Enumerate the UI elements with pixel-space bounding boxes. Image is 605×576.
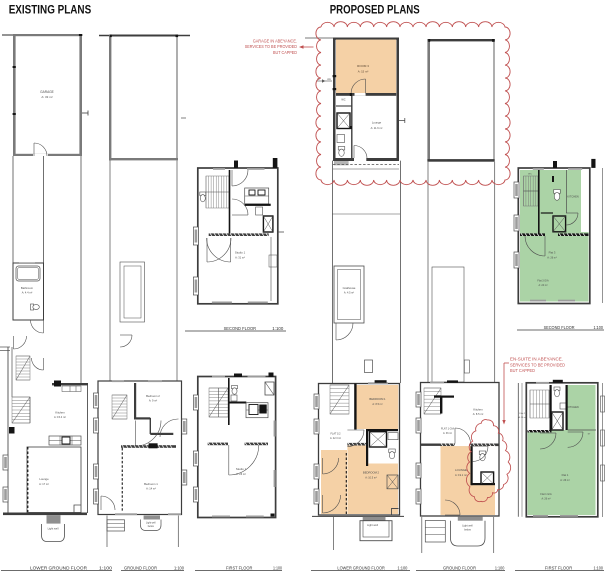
svg-text:A: 4.5 m²: A: 4.5 m² (344, 292, 354, 295)
svg-text:A: 34 m²: A: 34 m² (519, 416, 527, 419)
svg-text:BUT CAPPED: BUT CAPPED (510, 368, 535, 373)
svg-text:LOUNGE: LOUNGE (455, 468, 467, 472)
svg-text:A: 42.3 m²: A: 42.3 m² (330, 437, 341, 440)
svg-text:A: 15 m²: A: 15 m² (358, 70, 369, 74)
svg-text:GARAGE: GARAGE (40, 90, 54, 94)
svg-text:BUT CAPPED: BUT CAPPED (273, 50, 297, 55)
svg-text:Light well: Light well (48, 527, 59, 531)
svg-text:Flat 3: Flat 3 (549, 251, 556, 255)
svg-text:A: 33 m²: A: 33 m² (41, 95, 52, 99)
svg-text:A: 14 m²: A: 14 m² (146, 487, 156, 491)
svg-text:Bathroom: Bathroom (21, 286, 34, 290)
svg-text:KITCHEN: KITCHEN (567, 405, 579, 409)
svg-text:FIRST FLOOR: FIRST FLOOR (545, 566, 573, 572)
svg-text:A: 24 m²: A: 24 m² (538, 284, 547, 287)
svg-text:Kitchen: Kitchen (55, 411, 65, 415)
svg-text:FLAT 1/2: FLAT 1/2 (330, 433, 341, 436)
svg-text:GROUND FLOOR: GROUND FLOOR (124, 566, 157, 572)
svg-text:WC: WC (528, 174, 532, 176)
svg-text:BEDROOM 2: BEDROOM 2 (363, 471, 380, 475)
svg-text:1:100: 1:100 (594, 566, 604, 572)
svg-text:Light well: Light well (367, 523, 378, 527)
svg-text:A: 8.5 m²: A: 8.5 m² (473, 412, 484, 416)
svg-text:Studio 1: Studio 1 (236, 467, 247, 471)
svg-text:WC: WC (341, 99, 345, 102)
svg-text:ROOM 3: ROOM 3 (357, 64, 369, 68)
svg-text:LOWER GROUND FLOOR: LOWER GROUND FLOOR (337, 566, 385, 572)
svg-text:A: 11.6 m²: A: 11.6 m² (371, 126, 383, 130)
svg-text:Kitchen: Kitchen (473, 408, 483, 412)
svg-text:1:100: 1:100 (272, 326, 283, 332)
svg-text:A: 8.5 m²: A: 8.5 m² (372, 403, 382, 406)
svg-text:A: 17 m²: A: 17 m² (39, 482, 49, 486)
svg-text:Bedroom 2: Bedroom 2 (146, 394, 160, 398)
svg-text:SECOND FLOOR: SECOND FLOOR (224, 326, 257, 332)
svg-text:Lounge: Lounge (39, 477, 49, 481)
svg-text:1:100: 1:100 (174, 566, 184, 572)
svg-text:Studio 1: Studio 1 (235, 251, 246, 255)
svg-text:A: 4.4 m²: A: 4.4 m² (22, 291, 33, 295)
svg-text:below: below (464, 529, 471, 532)
svg-text:SERVICES TO BE PROVIDED: SERVICES TO BE PROVIDED (245, 44, 297, 49)
svg-text:Flat 3 GIA: Flat 3 GIA (537, 280, 549, 283)
svg-text:SECOND FLOOR: SECOND FLOOR (544, 325, 575, 331)
svg-text:Flat 1 GIA: Flat 1 GIA (540, 493, 552, 496)
svg-text:GROUND FLOOR: GROUND FLOOR (443, 566, 476, 572)
svg-text:below: below (148, 526, 154, 528)
svg-text:A: 26 m²: A: 26 m² (560, 479, 570, 482)
svg-text:SERVICES TO BE PROVIDED: SERVICES TO BE PROVIDED (510, 362, 565, 367)
svg-text:FLAT 1 GIA: FLAT 1 GIA (441, 428, 454, 431)
svg-text:1:100: 1:100 (594, 325, 604, 331)
svg-text:EXISTING PLANS: EXISTING PLANS (9, 3, 92, 17)
svg-text:1:100: 1:100 (495, 566, 505, 572)
svg-text:Lounge: Lounge (372, 121, 382, 125)
svg-text:A: 9 m²: A: 9 m² (149, 399, 157, 403)
svg-text:A: 31 m²: A: 31 m² (235, 255, 245, 259)
svg-text:EN-SUITE IN ABEYANCE.: EN-SUITE IN ABEYANCE. (510, 357, 563, 362)
svg-text:Light well: Light well (462, 525, 473, 528)
svg-text:1:100: 1:100 (397, 566, 407, 572)
svg-text:A: 26 m²: A: 26 m² (236, 472, 246, 476)
svg-text:AA: AA (327, 77, 331, 81)
svg-text:PROPOSED PLANS: PROPOSED PLANS (330, 3, 420, 17)
svg-text:A: 10.5 m²: A: 10.5 m² (365, 477, 377, 480)
svg-text:LOWER GROUND FLOOR: LOWER GROUND FLOOR (30, 566, 88, 572)
svg-text:Flat 1: Flat 1 (562, 473, 569, 477)
svg-text:A: 19.1 m²: A: 19.1 m² (455, 473, 467, 477)
svg-text:A: 36 m²: A: 36 m² (443, 432, 452, 435)
svg-text:Coalhouse: Coalhouse (343, 286, 356, 290)
svg-text:1:100: 1:100 (273, 566, 282, 572)
svg-text:KITCHEN: KITCHEN (567, 195, 579, 199)
svg-text:GARAGE IN ABEYANCE.: GARAGE IN ABEYANCE. (253, 39, 297, 44)
svg-text:FIRST FLOOR: FIRST FLOOR (226, 566, 253, 572)
svg-text:Bedroom 1: Bedroom 1 (144, 482, 158, 486)
svg-text:BEDROOM 1: BEDROOM 1 (369, 397, 386, 401)
svg-text:A: 26 m²: A: 26 m² (547, 256, 557, 259)
svg-text:Light well: Light well (146, 522, 156, 525)
svg-text:A: 15.4 m²: A: 15.4 m² (54, 415, 66, 419)
svg-text:Flat 2: Flat 2 (520, 412, 526, 415)
svg-text:1:100: 1:100 (99, 566, 112, 572)
svg-text:A: 26 m²: A: 26 m² (541, 498, 550, 501)
